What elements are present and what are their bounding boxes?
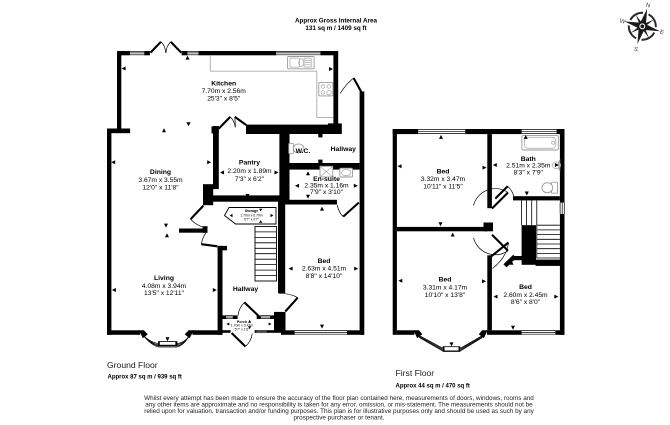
svg-text:3.67m x 3.55m: 3.67m x 3.55m [138, 177, 183, 184]
svg-text:13'5" x 12'11": 13'5" x 12'11" [144, 290, 185, 297]
svg-text:5'7" x 1'6": 5'7" x 1'6" [235, 327, 251, 331]
svg-text:Bed: Bed [318, 258, 331, 265]
svg-text:Approx Gross Internal Area: Approx Gross Internal Area [295, 18, 377, 25]
svg-text:Ground Floor: Ground Floor [107, 360, 158, 370]
svg-text:Hallway: Hallway [233, 286, 259, 293]
svg-text:3.31m x 4.17m: 3.31m x 4.17m [423, 284, 468, 291]
svg-text:Bed: Bed [437, 168, 450, 175]
svg-text:Approx 87 sq m / 939 sq ft: Approx 87 sq m / 939 sq ft [108, 374, 182, 380]
svg-text:7'3" x 6'2": 7'3" x 6'2" [235, 176, 265, 183]
svg-text:10'10" x 13'8": 10'10" x 13'8" [425, 292, 466, 299]
svg-text:2.60m x 2.45m: 2.60m x 2.45m [503, 292, 548, 299]
svg-text:7'9" x 3'10": 7'9" x 3'10" [310, 189, 344, 196]
svg-text:2.20m x 1.89m: 2.20m x 1.89m [227, 168, 272, 175]
svg-text:7.70m x 2.56m: 7.70m x 2.56m [202, 88, 247, 95]
svg-text:Dining: Dining [150, 169, 171, 176]
svg-text:131 sq m / 1409 sq ft: 131 sq m / 1409 sq ft [305, 25, 367, 32]
svg-text:5'7" x 2'7": 5'7" x 2'7" [244, 218, 260, 222]
svg-text:W.C.: W.C. [296, 148, 311, 155]
svg-text:Bed: Bed [519, 284, 532, 291]
svg-text:8'3" x 7'9": 8'3" x 7'9" [514, 170, 544, 177]
svg-text:prospective purchaser or tenan: prospective purchaser or tenant. [294, 415, 385, 422]
svg-text:Approx 44 sq m / 470 sq ft: Approx 44 sq m / 470 sq ft [396, 383, 470, 389]
svg-text:2.63m x 4.51m: 2.63m x 4.51m [302, 266, 347, 273]
svg-text:3.32m x 3.47m: 3.32m x 3.47m [421, 176, 466, 183]
svg-text:12'0" x 11'8": 12'0" x 11'8" [142, 185, 179, 192]
svg-text:Pantry: Pantry [239, 160, 260, 167]
svg-text:Bed: Bed [439, 277, 452, 284]
svg-text:10'11" x 11'5": 10'11" x 11'5" [423, 183, 463, 190]
svg-text:8'6" x 8'0": 8'6" x 8'0" [511, 299, 541, 306]
svg-text:8'8" x 14'10": 8'8" x 14'10" [306, 273, 343, 280]
svg-text:Kitchen: Kitchen [211, 80, 236, 87]
svg-text:First Floor: First Floor [396, 368, 435, 378]
svg-text:Hallway: Hallway [331, 146, 357, 153]
svg-text:2.51m x 2.35m: 2.51m x 2.35m [506, 163, 551, 170]
svg-text:4.08m x 3.94m: 4.08m x 3.94m [142, 283, 187, 290]
svg-text:Living: Living [154, 275, 174, 282]
svg-text:25'3" x 8'5": 25'3" x 8'5" [207, 96, 241, 103]
